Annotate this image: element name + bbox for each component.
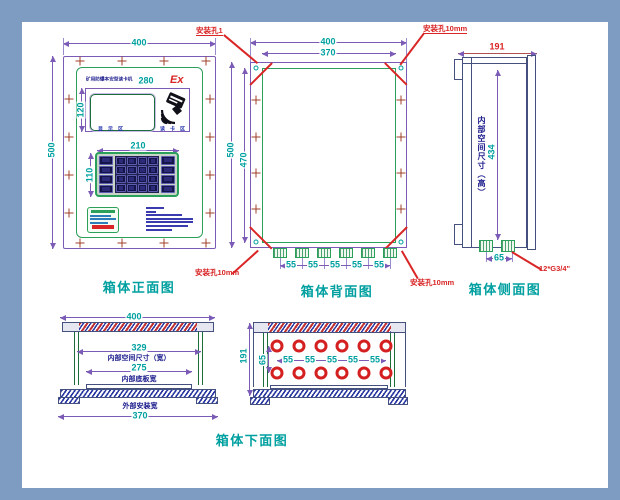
bolt-cross <box>65 133 74 142</box>
bolt-cross <box>160 57 169 66</box>
witness-line <box>390 258 391 269</box>
witness-line <box>346 258 347 269</box>
plate-hatch <box>268 323 391 332</box>
dim-back-hole-width: 370 <box>319 49 336 58</box>
bolt-cross <box>397 205 406 214</box>
keypad <box>95 152 179 197</box>
dim-line-side-inner-height <box>497 70 498 240</box>
dim-line-holes-depth <box>249 323 250 396</box>
bolt-cross <box>252 205 261 214</box>
callout-mount-hole-1: 安装孔1 <box>196 27 223 36</box>
mount-hole <box>254 66 259 71</box>
cable-gland <box>339 248 353 258</box>
entry-hole <box>358 340 371 353</box>
side-inner-size-note: 内部空间尺寸（高） <box>477 116 485 197</box>
keypad-key <box>161 166 175 175</box>
dim-bottom-plate: 275 <box>130 364 147 373</box>
dim-hole-spacing: 55 <box>369 356 381 365</box>
mount-width-note: 外部安装宽 <box>123 403 158 410</box>
cable-gland <box>501 240 515 252</box>
display-header-label: 矿用防爆本安型读卡机 <box>86 77 132 82</box>
callout-mount-hole-10: 安装孔10mm <box>423 25 467 34</box>
dim-line-side-depth <box>458 53 537 54</box>
spec-text-line <box>146 218 193 220</box>
keypad-key <box>138 166 148 174</box>
keypad-key <box>148 175 158 183</box>
dim-hole-spacing: 55 <box>326 356 338 365</box>
keypad-right-column <box>161 156 175 193</box>
spec-text-line <box>146 214 182 216</box>
ex-mark: Ex <box>170 75 183 86</box>
dim-display-height: 120 <box>77 101 86 118</box>
holes-base-plate <box>253 389 406 398</box>
entry-hole <box>336 367 349 380</box>
side-wall <box>74 332 79 385</box>
side-mount-bracket <box>454 224 463 245</box>
witness-line <box>324 258 325 269</box>
mount-hole <box>399 240 404 245</box>
bolt-cross <box>252 96 261 105</box>
dim-line-row-gap <box>268 346 269 373</box>
side-back-plate <box>527 55 536 250</box>
nameplate-header-line <box>91 210 115 213</box>
dim-back-width: 400 <box>319 38 336 47</box>
nameplate-text-line <box>90 222 108 224</box>
dim-gland-spacing: 55 <box>329 261 341 270</box>
cable-gland <box>273 248 287 258</box>
witness-line <box>406 38 407 62</box>
bolt-cross <box>65 171 74 180</box>
dim-holes-depth: 191 <box>240 347 249 364</box>
bolt-cross <box>118 239 127 248</box>
side-view-title: 箱体侧面图 <box>469 279 542 298</box>
keypad-key <box>127 157 137 165</box>
plate-end-cap <box>391 323 405 332</box>
back-view-title: 箱体背面图 <box>301 281 374 300</box>
witness-line <box>63 38 64 55</box>
dim-side-depth: 191 <box>488 43 505 52</box>
dim-back-hole-height: 470 <box>240 151 249 168</box>
bolt-cross <box>65 95 74 104</box>
bolt-cross <box>76 57 85 66</box>
keypad-key <box>99 175 113 184</box>
keypad-key <box>127 175 137 183</box>
dim-keypad-width: 210 <box>129 142 146 151</box>
entry-hole <box>380 340 393 353</box>
side-mount-bracket <box>454 59 463 80</box>
keypad-key <box>148 157 158 165</box>
nameplate <box>87 207 119 233</box>
side-door-line <box>471 57 472 248</box>
bolt-cross <box>76 239 85 248</box>
bolt-cross <box>206 95 215 104</box>
dim-bottom-outer: 400 <box>125 313 142 322</box>
dim-gland-spacing: 55 <box>307 261 319 270</box>
base-foot <box>196 397 218 404</box>
dim-row-gap: 65 <box>259 354 268 366</box>
cable-gland <box>479 240 493 252</box>
witness-line <box>368 258 369 269</box>
bolt-cross <box>202 239 211 248</box>
bolt-cross <box>397 96 406 105</box>
caption-display-area: 显 示 区 <box>98 127 125 132</box>
witness-line <box>215 38 216 55</box>
dim-display-width: 280 <box>137 77 154 86</box>
dim-side-inner-height: 434 <box>488 143 497 160</box>
entry-hole <box>293 340 306 353</box>
callout-thread-spec: 12*G3/4" <box>539 265 570 273</box>
outer-wall-line <box>253 333 254 387</box>
mount-hole <box>399 66 404 71</box>
nameplate-text-line <box>90 218 116 220</box>
entry-hole <box>315 367 328 380</box>
bolt-cross <box>202 57 211 66</box>
bolt-cross <box>397 169 406 178</box>
dim-hole-spacing: 55 <box>347 356 359 365</box>
bolt-cross <box>206 171 215 180</box>
spec-text-line <box>146 229 172 231</box>
keypad-key <box>138 175 148 183</box>
plate-end-cap <box>63 323 79 331</box>
cable-gland <box>361 248 375 258</box>
base-foot <box>388 397 408 405</box>
drawing-sheet: 400 500 矿用防爆本安型读卡机 280 Ex 120 显 示 区 读 卡 … <box>0 0 620 500</box>
card-swipe-icon <box>157 92 187 128</box>
spec-text-line <box>146 225 188 227</box>
dim-gland-spacing: 55 <box>373 261 385 270</box>
dim-side-gland-spacing: 65 <box>493 254 505 263</box>
front-view-title: 箱体正面图 <box>103 277 176 296</box>
keypad-key <box>127 184 137 192</box>
dim-bottom-mount: 370 <box>131 412 148 421</box>
bolt-cross <box>160 239 169 248</box>
cable-gland <box>383 248 397 258</box>
keypad-key <box>161 156 175 165</box>
holes-top-plate <box>253 322 406 333</box>
keypad-number-grid <box>115 156 159 193</box>
bolt-cross <box>65 209 74 218</box>
bolt-cross <box>118 57 127 66</box>
witness-line <box>302 258 303 269</box>
entry-hole <box>358 367 371 380</box>
keypad-key <box>116 175 126 183</box>
bolt-cross <box>397 133 406 142</box>
inner-width-note: 内部空间尺寸（宽） <box>108 355 171 362</box>
keypad-key <box>116 157 126 165</box>
bottom-top-plate <box>62 322 214 332</box>
plate-end-cap <box>254 323 268 332</box>
plate-end-cap <box>197 323 213 331</box>
bolt-cross <box>206 209 215 218</box>
bottom-base-plate <box>60 389 216 398</box>
entry-hole <box>315 340 328 353</box>
dim-front-height: 500 <box>48 141 57 158</box>
bolt-cross <box>252 133 261 142</box>
keypad-key <box>127 166 137 174</box>
bottom-view-title: 箱体下面图 <box>216 430 289 449</box>
keypad-key <box>148 166 158 174</box>
bolt-cross <box>252 169 261 178</box>
spec-text-line <box>146 207 164 209</box>
keypad-key <box>148 184 158 192</box>
keypad-key <box>161 185 175 194</box>
mount-hole <box>254 240 259 245</box>
keypad-key <box>138 184 148 192</box>
dim-gland-spacing: 55 <box>285 261 297 270</box>
caption-card-area: 读 卡 区 <box>160 127 187 132</box>
keypad-key <box>161 175 175 184</box>
keypad-key <box>99 156 113 165</box>
dim-keypad-height: 110 <box>86 167 95 184</box>
keypad-left-column <box>99 156 113 193</box>
keypad-key <box>99 185 113 194</box>
cable-gland <box>295 248 309 258</box>
dim-gland-spacing: 55 <box>351 261 363 270</box>
dim-front-width: 400 <box>130 39 147 48</box>
entry-hole <box>293 367 306 380</box>
plate-hatch <box>79 323 197 331</box>
nameplate-red-line <box>92 225 114 229</box>
dim-hole-spacing: 55 <box>282 356 294 365</box>
entry-hole <box>336 340 349 353</box>
entry-hole <box>380 367 393 380</box>
spec-text-line <box>146 211 156 213</box>
dim-back-height: 500 <box>227 141 236 158</box>
bolt-cross <box>206 133 215 142</box>
spec-text-block <box>146 207 196 235</box>
keypad-key <box>116 184 126 192</box>
keypad-key <box>138 157 148 165</box>
base-foot <box>58 397 80 404</box>
dim-bottom-inner: 329 <box>130 344 147 353</box>
keypad-key <box>116 166 126 174</box>
cable-gland <box>317 248 331 258</box>
entry-hole <box>271 367 284 380</box>
side-wall <box>198 332 203 385</box>
spec-text-line <box>146 221 193 223</box>
entry-hole <box>271 340 284 353</box>
keypad-key <box>99 166 113 175</box>
outer-wall-line <box>405 333 406 387</box>
callout-mount-hole-10: 安装孔10mm <box>410 279 454 287</box>
nameplate-text-line <box>90 215 111 217</box>
dim-hole-spacing: 55 <box>304 356 316 365</box>
back-inner-outline <box>262 68 396 243</box>
plate-width-note: 内部底板宽 <box>122 376 157 383</box>
base-foot <box>250 397 270 405</box>
